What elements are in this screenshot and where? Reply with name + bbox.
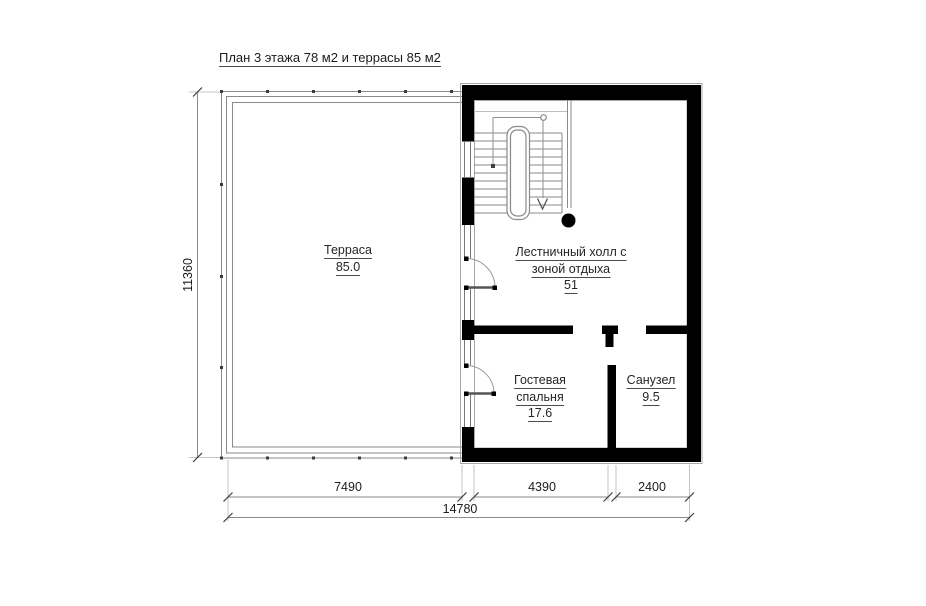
staircase	[474, 97, 571, 220]
column	[562, 214, 576, 228]
walking-line-start-circle	[541, 115, 547, 121]
door-swing-arc	[466, 259, 495, 288]
bedroom-name-line2: спальня	[516, 390, 563, 406]
bathroom-name: Санузел	[627, 373, 676, 389]
room-label-terrace: Терраса 85.0	[324, 243, 372, 276]
dimension-height-left: 11360	[181, 258, 195, 292]
bathroom-area: 9.5	[642, 390, 659, 406]
stair-direction-arrow	[538, 199, 548, 210]
plan-title-text: План 3 этажа 78 м2 и террасы 85 м2	[219, 50, 441, 67]
stair-center-railing	[507, 127, 530, 220]
dimension-width-terrace: 7490	[334, 480, 362, 494]
walking-line-dot	[491, 164, 495, 168]
stair-handrail	[568, 97, 572, 208]
terrace-name: Терраса	[324, 243, 372, 259]
room-label-bathroom: Санузел 9.5	[627, 373, 676, 406]
terrace-area: 85.0	[336, 260, 360, 276]
dimension-width-total: 14780	[443, 502, 478, 516]
door-swing-arc	[466, 366, 494, 394]
bedroom-area: 17.6	[528, 406, 552, 422]
hall-terrace-door	[464, 257, 497, 291]
hall-area: 51	[564, 278, 578, 294]
plan-title: План 3 этажа 78 м2 и террасы 85 м2	[219, 50, 441, 67]
hall-name-line2: зоной отдыха	[532, 262, 610, 278]
bedroom-name-line1: Гостевая	[514, 373, 566, 389]
bedroom-terrace-door	[464, 364, 496, 397]
dimension-width-house-left: 4390	[528, 480, 556, 494]
floor-plan-drawing: План 3 этажа 78 м2 и террасы 85 м2 Терра…	[0, 0, 926, 606]
room-label-hall: Лестничный холл с зоной отдыха 51	[516, 245, 627, 295]
room-label-bedroom: Гостевая спальня 17.6	[514, 373, 566, 423]
hall-name-line1: Лестничный холл с	[516, 245, 627, 261]
dimension-width-house-right: 2400	[638, 480, 666, 494]
